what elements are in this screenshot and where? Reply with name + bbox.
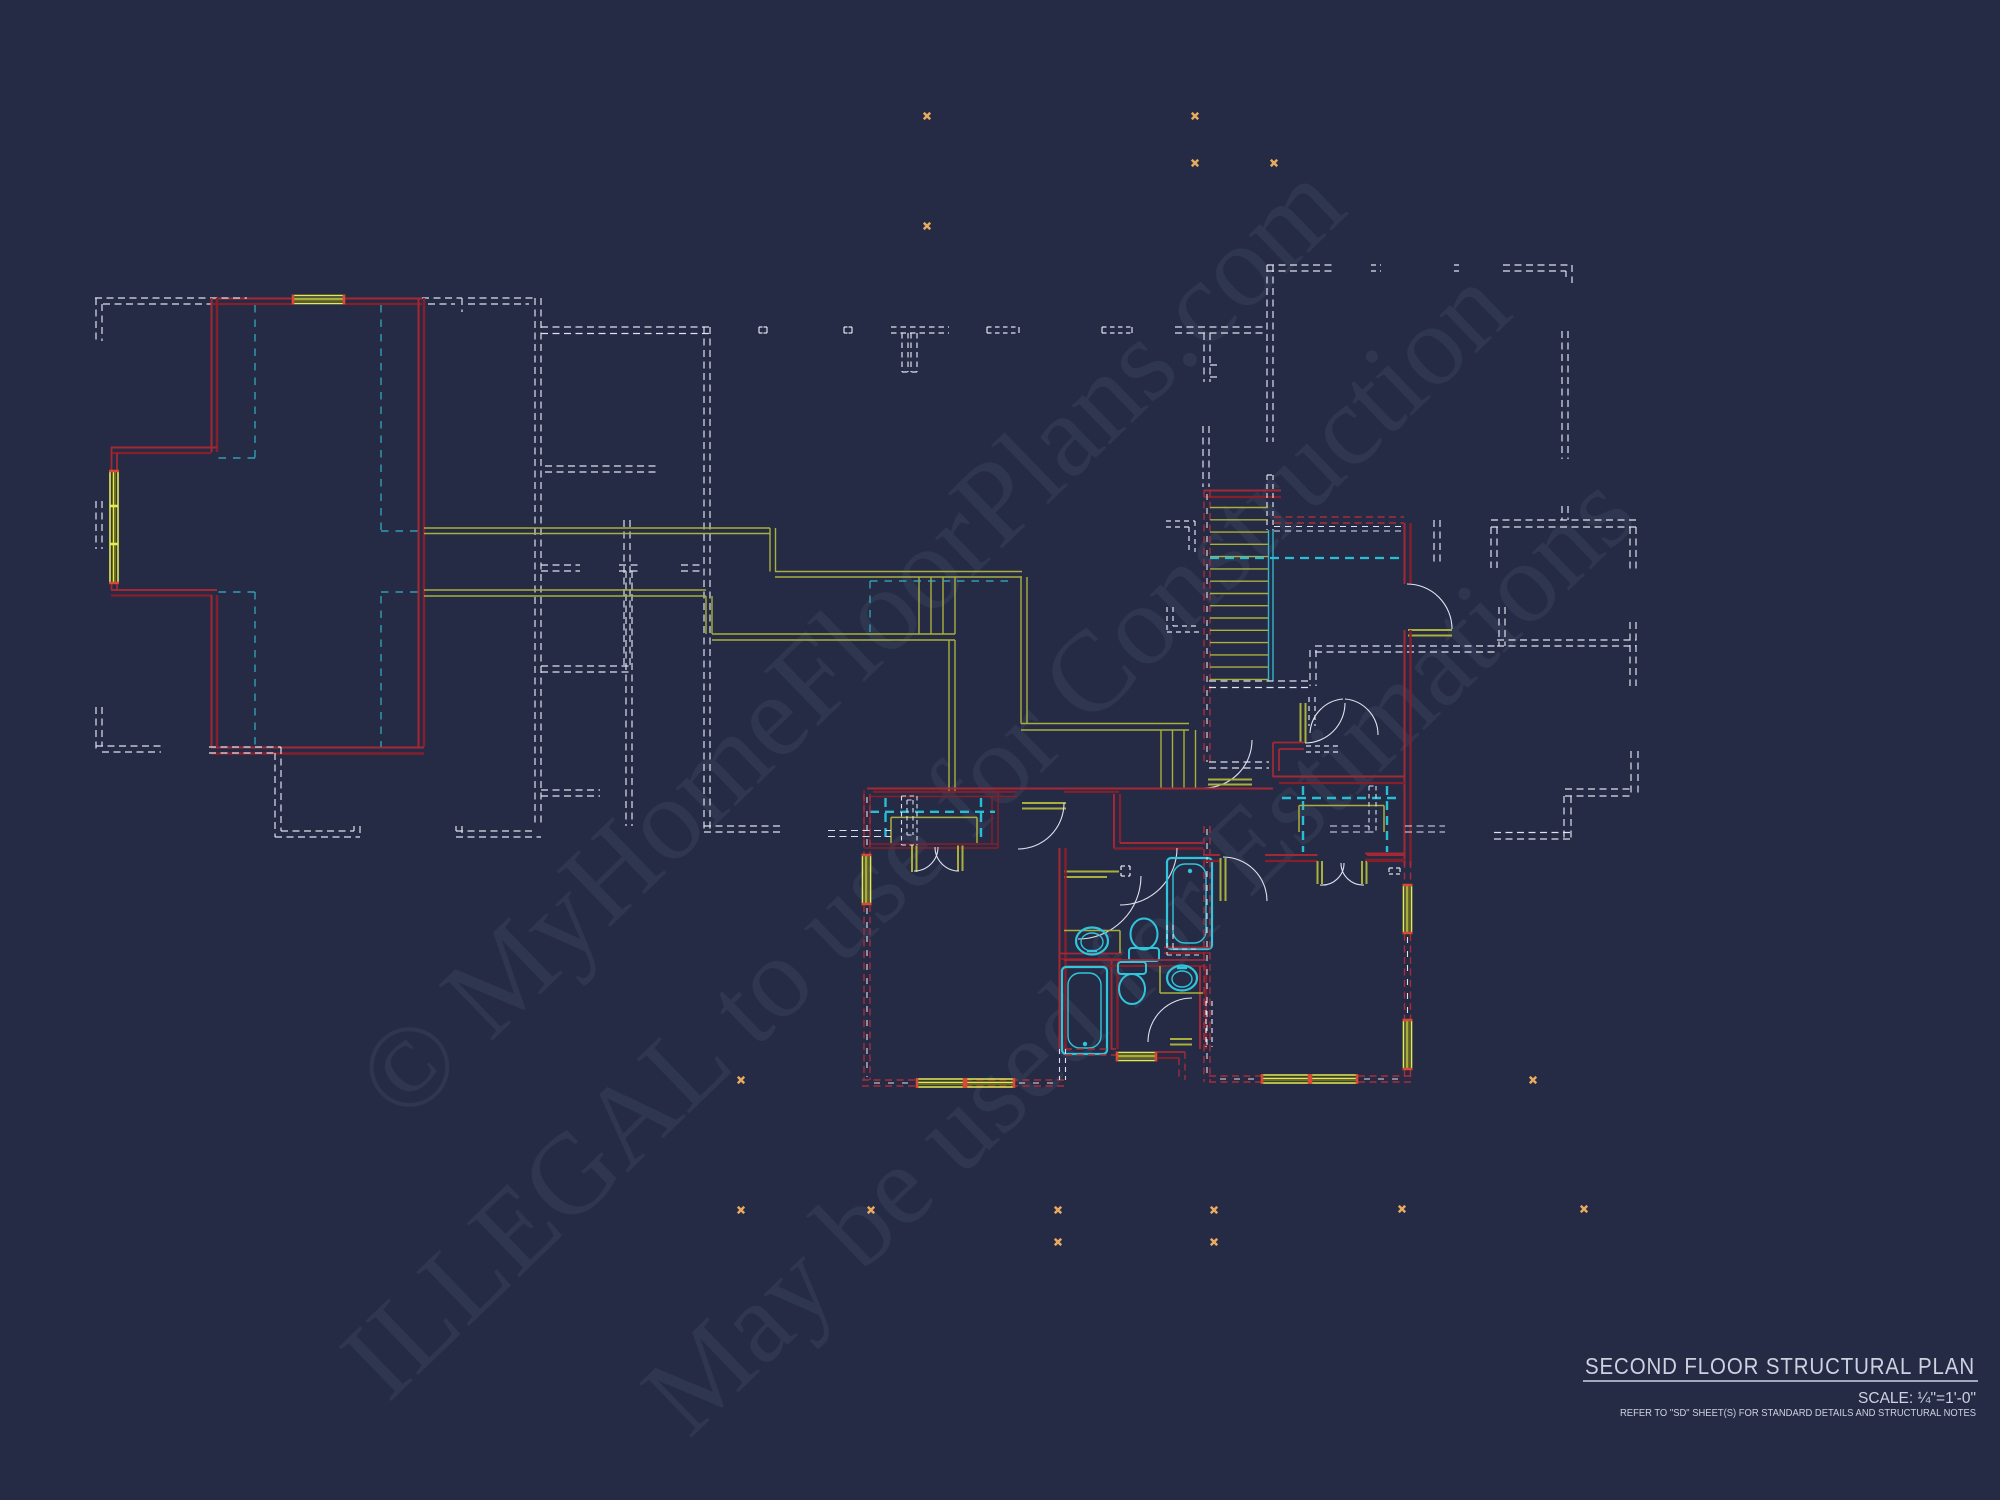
- svg-text:SCALE: ¼"=1'-0": SCALE: ¼"=1'-0": [1858, 1390, 1976, 1407]
- svg-text:REFER TO "SD" SHEET(S) FOR STA: REFER TO "SD" SHEET(S) FOR STANDARD DETA…: [1620, 1407, 1976, 1419]
- svg-text:SECOND FLOOR STRUCTURAL PLAN: SECOND FLOOR STRUCTURAL PLAN: [1585, 1353, 1975, 1379]
